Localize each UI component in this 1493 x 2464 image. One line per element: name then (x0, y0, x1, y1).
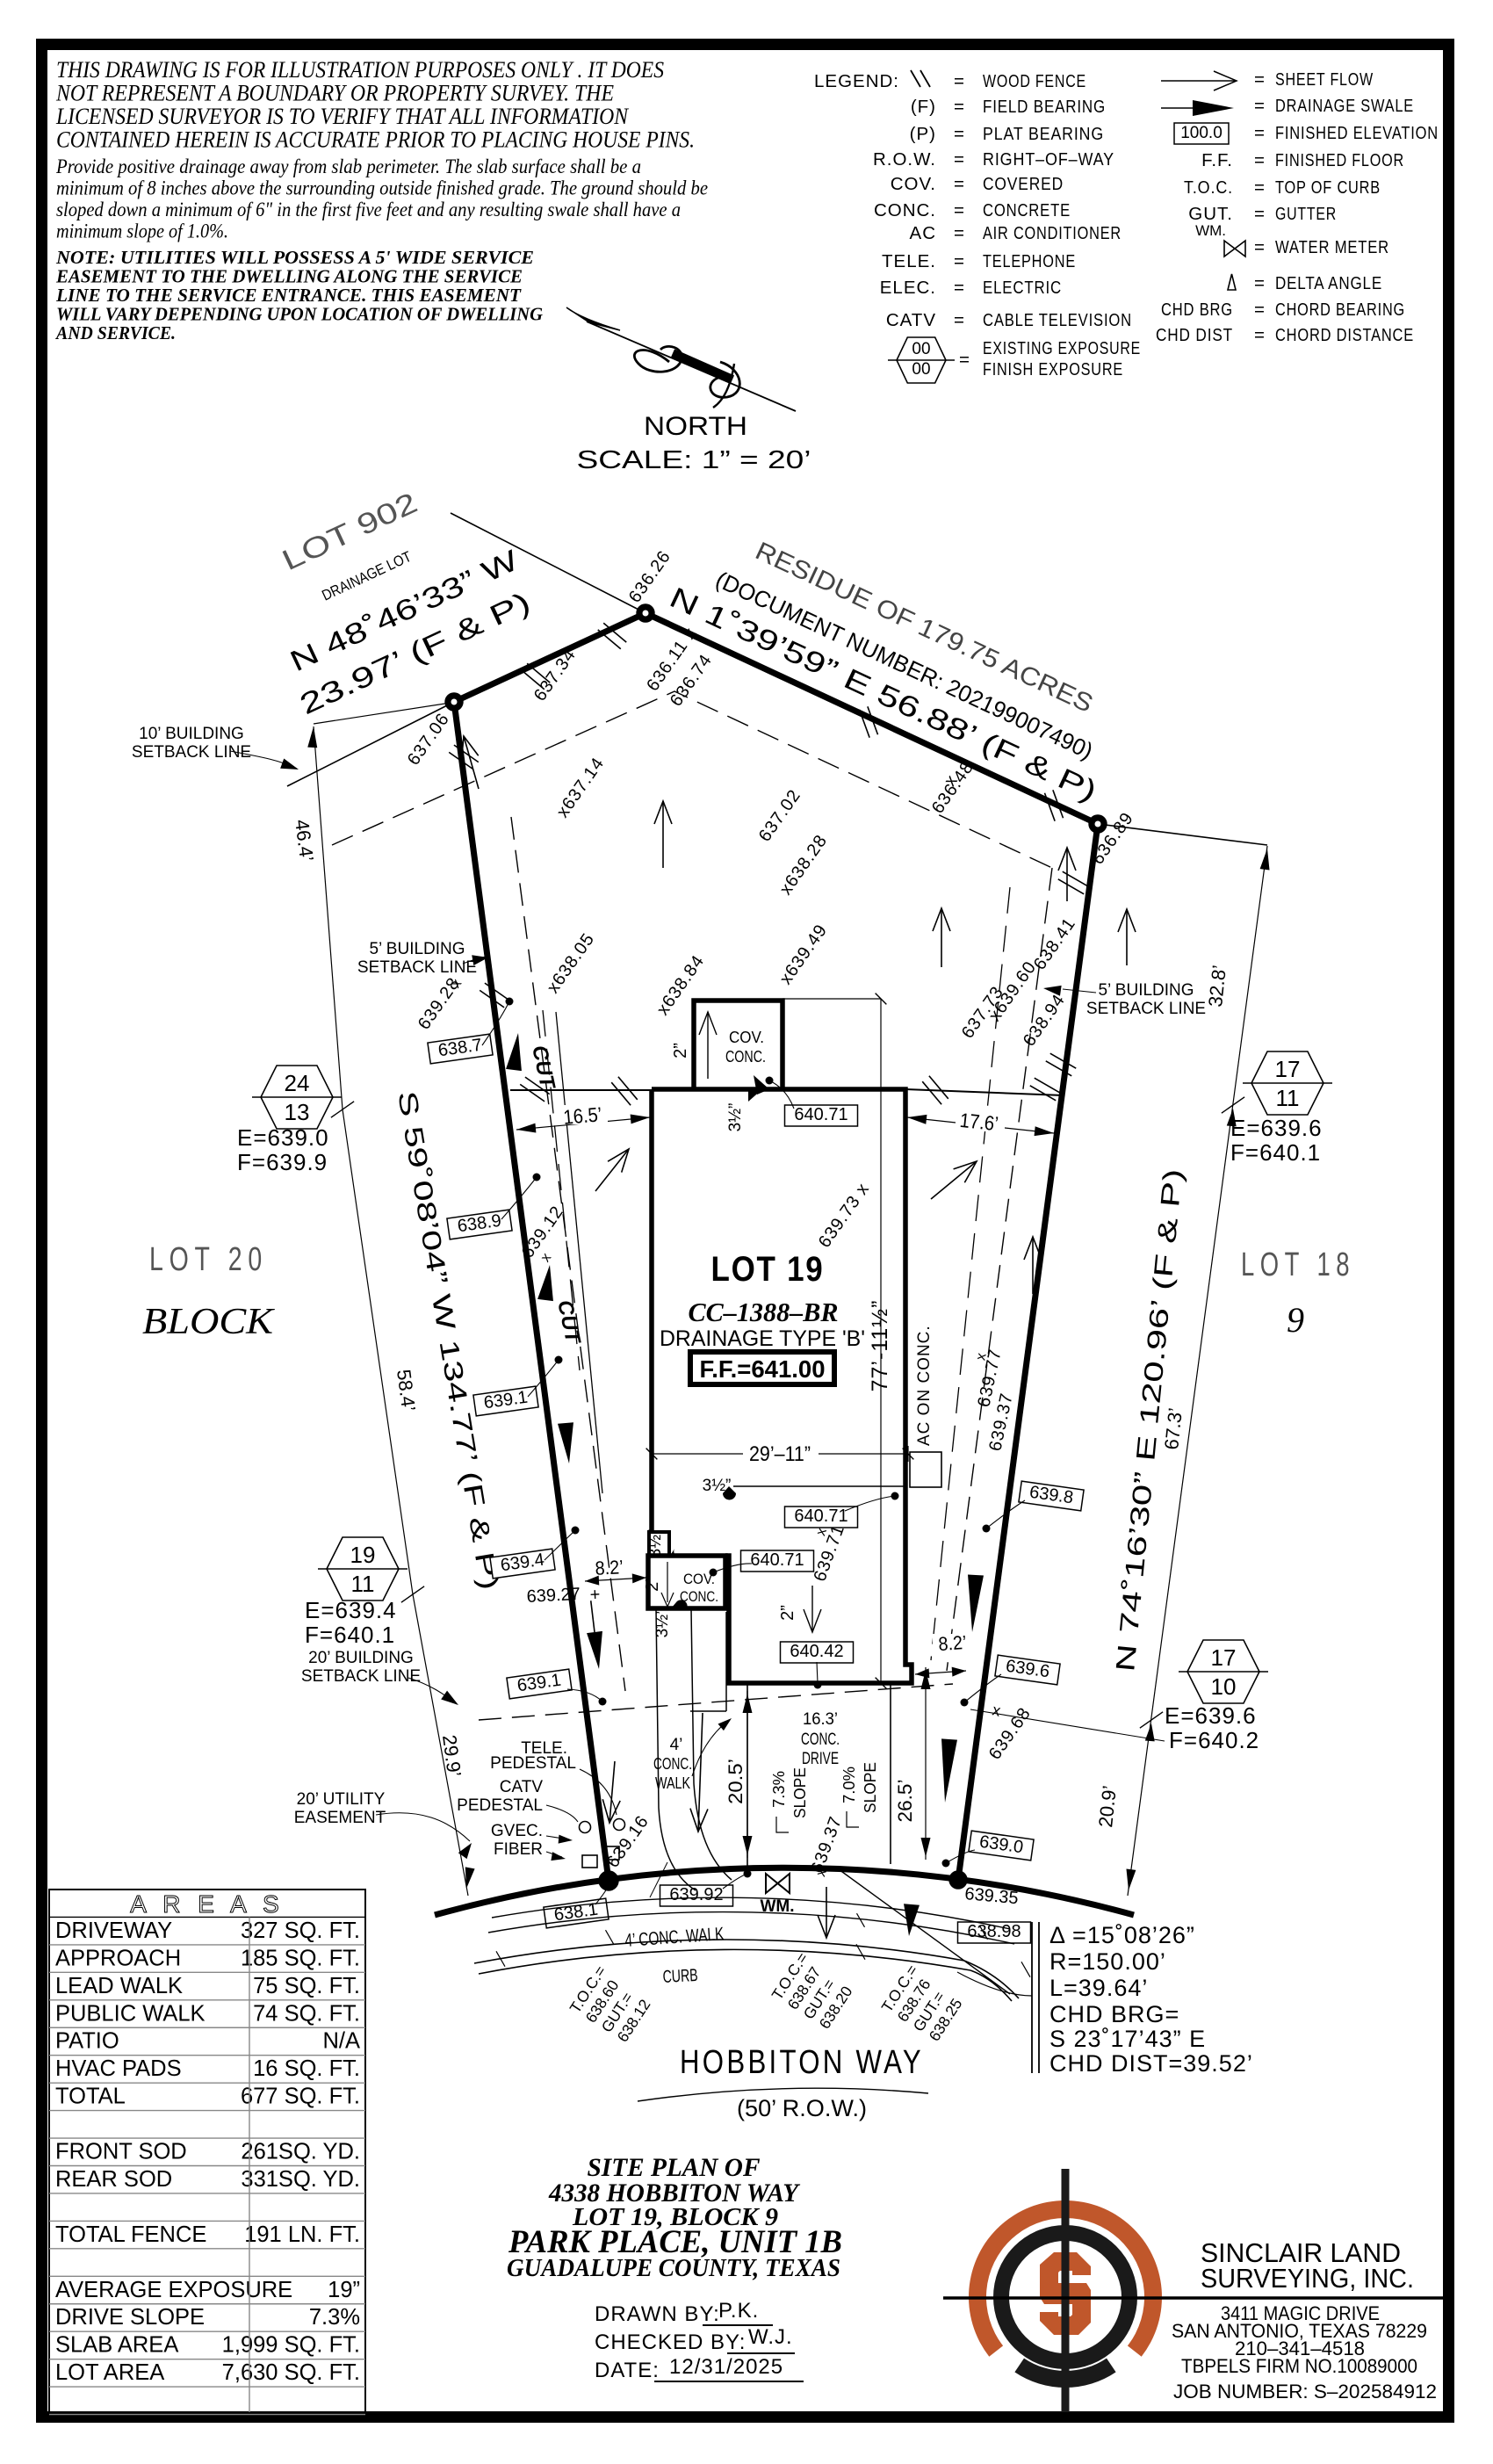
svg-text:11: 11 (351, 1571, 375, 1597)
svg-text:ELEC.: ELEC. (880, 278, 936, 298)
svg-text:AIR CONDITIONER: AIR CONDITIONER (983, 223, 1122, 243)
svg-text:185 SQ. FT.: 185 SQ. FT. (241, 1946, 360, 1970)
svg-text:5’ BUILDING: 5’ BUILDING (369, 940, 465, 958)
svg-text:minimum of 8 inches above the: minimum of 8 inches above the surroundin… (56, 177, 708, 199)
svg-text:SHEET FLOW: SHEET FLOW (1275, 69, 1374, 90)
svg-text:L=39.64’: L=39.64’ (1049, 1975, 1148, 2001)
svg-text:WM.: WM. (1195, 222, 1226, 239)
svg-text:EASEMENT TO THE DWELLING A: EASEMENT TO THE DWELLING ALONG THE SERVI… (55, 266, 523, 287)
svg-text:LICENSED SURVEYOR IS TO VERIFY: LICENSED SURVEYOR IS TO VERIFY THAT ALL … (55, 104, 629, 129)
svg-text:20’ BUILDING: 20’ BUILDING (308, 1649, 414, 1667)
svg-text:11: 11 (1276, 1085, 1300, 1111)
svg-text:26.5’: 26.5’ (894, 1780, 916, 1823)
svg-text:LOT 18: LOT 18 (1241, 1246, 1355, 1283)
svg-text:FINISH EXPOSURE: FINISH EXPOSURE (983, 359, 1123, 379)
svg-text:F=640.1: F=640.1 (305, 1622, 395, 1648)
svg-text:=: = (954, 71, 964, 91)
svg-text:CC–1388–BR: CC–1388–BR (689, 1297, 839, 1327)
svg-text:1,999 SQ. FT.: 1,999 SQ. FT. (222, 2333, 360, 2358)
svg-text:LOT 19: LOT 19 (711, 1250, 825, 1289)
svg-text:SETBACK LINE: SETBACK LINE (1086, 1000, 1206, 1018)
svg-text:261SQ. YD.: 261SQ. YD. (241, 2140, 360, 2164)
svg-text:minimum slope of 1.0%.: minimum slope of 1.0%. (56, 220, 228, 242)
svg-text:AND SERVICE.: AND SERVICE. (54, 322, 176, 343)
svg-text:SETBACK LINE: SETBACK LINE (132, 743, 251, 762)
svg-text:17.6’: 17.6’ (959, 1109, 999, 1135)
svg-text:LINE TO THE SERVICE ENTRAN: LINE TO THE SERVICE ENTRANCE. THIS EASEM… (55, 285, 522, 306)
svg-text:640.42: 640.42 (790, 1642, 843, 1661)
svg-text:CATV: CATV (500, 1778, 544, 1796)
svg-text:20.5’: 20.5’ (725, 1759, 746, 1804)
svg-text:CHD DIST=39.52’: CHD DIST=39.52’ (1049, 2050, 1253, 2077)
svg-text:COVERED: COVERED (983, 174, 1064, 194)
svg-text:SLAB AREA: SLAB AREA (55, 2333, 178, 2358)
svg-text:DRIVE: DRIVE (802, 1750, 839, 1768)
svg-text:=: = (1254, 96, 1265, 116)
svg-text:CHORD DISTANCE: CHORD DISTANCE (1275, 325, 1414, 345)
svg-text:SETBACK LINE: SETBACK LINE (301, 1667, 421, 1686)
svg-text:640.71: 640.71 (794, 1105, 847, 1124)
svg-text:77’‑11½”: 77’‑11½” (868, 1300, 892, 1392)
svg-text:sloped down a minimum of 6" in: sloped down a minimum of 6" in the first… (56, 199, 681, 220)
svg-text:16.5’: 16.5’ (562, 1102, 602, 1129)
svg-text:3½”: 3½” (726, 1103, 745, 1132)
svg-text:2”: 2” (643, 1576, 662, 1592)
svg-text:16.3’: 16.3’ (803, 1710, 838, 1729)
svg-text:=: = (959, 350, 970, 370)
svg-text:=: = (954, 124, 964, 144)
svg-text:=: = (1254, 123, 1265, 143)
svg-text:DRAINAGE SWALE: DRAINAGE SWALE (1275, 96, 1414, 116)
svg-text:HOBBITON WAY: HOBBITON WAY (680, 2044, 924, 2081)
svg-text:7.3%: 7.3% (309, 2305, 360, 2330)
svg-text:GUADALUPE COUNTY, TEXAS: GUADALUPE COUNTY, TEXAS (507, 2255, 840, 2282)
svg-text:10: 10 (1211, 1673, 1237, 1700)
svg-text:639.27: 639.27 (526, 1585, 581, 1607)
svg-text:19: 19 (350, 1542, 376, 1568)
svg-text:00: 00 (912, 340, 930, 358)
svg-text:17: 17 (1211, 1644, 1237, 1671)
svg-text:DRAINAGE TYPE 'B': DRAINAGE TYPE 'B' (660, 1326, 865, 1351)
svg-text:FINISHED ELEVATION: FINISHED ELEVATION (1275, 123, 1439, 143)
svg-text:LEAD WALK: LEAD WALK (55, 1974, 183, 1998)
svg-text:24: 24 (285, 1070, 310, 1096)
svg-text:AC ON CONC.: AC ON CONC. (915, 1325, 934, 1446)
svg-text:THIS DRAWING IS FOR ILLUSTRATI: THIS DRAWING IS FOR ILLUSTRATION PURPOSE… (56, 57, 664, 83)
svg-text:(F): (F) (911, 97, 936, 117)
svg-text:=: = (954, 278, 964, 298)
svg-text:ELECTRIC: ELECTRIC (983, 278, 1062, 298)
svg-text:16 SQ. FT.: 16 SQ. FT. (253, 2056, 360, 2081)
svg-text:EXISTING EXPOSURE: EXISTING EXPOSURE (983, 338, 1141, 358)
svg-text:F=640.2: F=640.2 (1169, 1727, 1259, 1753)
svg-text:8.2’: 8.2’ (938, 1631, 968, 1655)
svg-text:DELTA ANGLE: DELTA ANGLE (1275, 273, 1382, 293)
svg-text:DRIVE SLOPE: DRIVE SLOPE (55, 2305, 205, 2330)
svg-text:TOTAL: TOTAL (55, 2085, 126, 2109)
svg-text:A R E A S: A R E A S (130, 1890, 284, 1918)
svg-text:RIGHT–OF–WAY: RIGHT–OF–WAY (983, 149, 1114, 170)
svg-text:CONC.: CONC. (874, 200, 936, 220)
svg-text:TOTAL FENCE: TOTAL FENCE (55, 2222, 206, 2247)
svg-text:=: = (1254, 237, 1265, 257)
svg-text:74 SQ. FT.: 74 SQ. FT. (253, 2001, 360, 2026)
svg-text:7,630 SQ. FT.: 7,630 SQ. FT. (222, 2360, 360, 2385)
svg-text:DATE:: DATE: (595, 2359, 660, 2382)
svg-text:E=639.0: E=639.0 (237, 1124, 329, 1151)
svg-text:FRONT SOD: FRONT SOD (55, 2140, 187, 2164)
svg-text:19”: 19” (328, 2278, 360, 2302)
svg-text:=: = (954, 174, 964, 194)
svg-text:E=639.4: E=639.4 (305, 1597, 397, 1623)
svg-text:WALK: WALK (655, 1774, 690, 1792)
svg-text:=: = (954, 200, 964, 220)
svg-text:SETBACK LINE: SETBACK LINE (357, 958, 477, 977)
svg-text:20’ UTILITY: 20’ UTILITY (297, 1790, 386, 1809)
svg-text:WATER METER: WATER METER (1275, 237, 1389, 257)
svg-text:Provide positive drainage away: Provide positive drainage away from slab… (55, 155, 641, 177)
svg-text:191 LN. FT.: 191 LN. FT. (244, 2222, 360, 2247)
svg-text:GUT.: GUT. (1188, 204, 1233, 224)
svg-text:N/A: N/A (322, 2029, 360, 2054)
svg-text:SURVEYING, INC.: SURVEYING, INC. (1201, 2263, 1414, 2294)
svg-text:GVEC.: GVEC. (491, 1822, 543, 1840)
svg-text:PATIO: PATIO (55, 2029, 119, 2054)
svg-text:GUTTER: GUTTER (1275, 204, 1337, 224)
svg-text:CURB: CURB (662, 1966, 698, 1987)
svg-text:331SQ. YD.: 331SQ. YD. (241, 2167, 360, 2192)
svg-text:PLAT BEARING: PLAT BEARING (983, 124, 1104, 144)
svg-text:75 SQ. FT.: 75 SQ. FT. (253, 1974, 360, 1998)
svg-text:7.3%: 7.3% (770, 1771, 788, 1808)
svg-text:AVERAGE EXPOSURE: AVERAGE EXPOSURE (55, 2278, 292, 2302)
svg-text:BLOCK: BLOCK (142, 1302, 275, 1342)
svg-text:100.0: 100.0 (1180, 124, 1223, 142)
svg-text:CHECKED BY:: CHECKED BY: (595, 2330, 746, 2354)
svg-text:R=150.00’: R=150.00’ (1049, 1948, 1166, 1975)
svg-text:10’ BUILDING: 10’ BUILDING (139, 725, 244, 743)
svg-text:EASEMENT: EASEMENT (294, 1809, 386, 1827)
svg-text:R.O.W.: R.O.W. (873, 149, 936, 170)
svg-text:NORTH: NORTH (644, 412, 747, 441)
svg-text:3½”: 3½” (646, 1529, 665, 1558)
svg-text:FIBER: FIBER (494, 1840, 543, 1859)
svg-text:29’–11”: 29’–11” (749, 1442, 811, 1466)
svg-text:WM.: WM. (760, 1897, 794, 1916)
svg-text:CATV: CATV (886, 310, 936, 330)
svg-text:=: = (954, 310, 964, 330)
svg-text:S 23˚17’43” E: S 23˚17’43” E (1049, 2026, 1206, 2052)
svg-text:=: = (954, 251, 964, 271)
svg-text:LOT 20: LOT 20 (149, 1241, 268, 1278)
svg-text:(P): (P) (910, 124, 936, 144)
svg-text:FINISHED FLOOR: FINISHED FLOOR (1275, 150, 1404, 170)
svg-text:=: = (954, 97, 964, 117)
svg-text:PEDESTAL: PEDESTAL (490, 1754, 576, 1773)
svg-text:67.3’: 67.3’ (1160, 1406, 1186, 1450)
svg-text:2”: 2” (671, 1043, 690, 1059)
svg-text:TBPELS FIRM NO.10089000: TBPELS FIRM NO.10089000 (1181, 2355, 1417, 2377)
svg-text:SLOPE: SLOPE (862, 1762, 879, 1813)
svg-text:W.J.: W.J. (748, 2325, 793, 2349)
svg-text:SLOPE: SLOPE (791, 1767, 809, 1818)
svg-text:CONCRETE: CONCRETE (983, 200, 1071, 220)
svg-text:Δ =15˚08’26”: Δ =15˚08’26” (1049, 1922, 1195, 1948)
svg-text:CHD BRG: CHD BRG (1161, 300, 1233, 320)
svg-text:=: = (1254, 150, 1265, 170)
svg-text:PEDESTAL: PEDESTAL (457, 1796, 543, 1815)
svg-text:TELE.: TELE. (882, 251, 936, 271)
svg-text:640.71: 640.71 (794, 1507, 847, 1526)
svg-text:NOT REPRESENT A BOUNDARY OR PR: NOT REPRESENT A BOUNDARY OR PROPERTY SUR… (55, 81, 614, 106)
svg-text:12/31/2025: 12/31/2025 (669, 2355, 783, 2379)
svg-text:FIELD BEARING: FIELD BEARING (983, 97, 1106, 117)
svg-text:=: = (1254, 300, 1265, 320)
svg-text:20.9’: 20.9’ (1094, 1784, 1121, 1828)
svg-text:PUBLIC WALK: PUBLIC WALK (55, 2001, 206, 2026)
svg-text:9: 9 (1287, 1300, 1304, 1340)
svg-text:COV.: COV. (729, 1029, 764, 1046)
svg-text:APPROACH: APPROACH (55, 1946, 181, 1970)
svg-text:LOT AREA: LOT AREA (55, 2360, 164, 2385)
svg-text:REAR SOD: REAR SOD (55, 2167, 172, 2192)
svg-text:=: = (1254, 273, 1265, 293)
svg-text:=: = (954, 223, 964, 243)
svg-text:TOP OF CURB: TOP OF CURB (1275, 177, 1381, 198)
svg-text:WOOD FENCE: WOOD FENCE (983, 71, 1086, 91)
svg-text:=: = (954, 149, 964, 170)
svg-text:=: = (1254, 177, 1265, 198)
svg-text:=: = (1254, 69, 1265, 90)
svg-text:F=639.9: F=639.9 (237, 1149, 328, 1175)
svg-text:DRAWN BY:: DRAWN BY: (595, 2302, 720, 2326)
svg-text:F=640.1: F=640.1 (1230, 1139, 1321, 1166)
svg-text:DRIVEWAY: DRIVEWAY (55, 1918, 172, 1943)
svg-text:CHD DIST: CHD DIST (1156, 325, 1233, 345)
svg-text:CONC.: CONC. (653, 1755, 692, 1773)
svg-text:NOTE: UTILITIES WILL POSSES: NOTE: UTILITIES WILL POSSESS A 5' WIDE S… (55, 247, 534, 268)
svg-text:CABLE TELEVISION: CABLE TELEVISION (983, 310, 1132, 330)
svg-text:7.0%: 7.0% (840, 1767, 858, 1803)
svg-text:T.O.C.: T.O.C. (1184, 177, 1233, 198)
svg-text:00: 00 (912, 360, 930, 379)
svg-text:SCALE: 1” = 20’: SCALE: 1” = 20’ (577, 446, 811, 474)
svg-text:JOB NUMBER: S–202584912: JOB NUMBER: S–202584912 (1173, 2381, 1437, 2403)
svg-text:4’: 4’ (670, 1736, 683, 1754)
svg-text:=: = (1254, 204, 1265, 224)
svg-text:32.8’: 32.8’ (1204, 964, 1230, 1008)
svg-text:F.F.: F.F. (1201, 150, 1233, 170)
svg-text:F.F.=641.00: F.F.=641.00 (700, 1355, 826, 1383)
svg-text:CONC.: CONC. (725, 1048, 766, 1066)
svg-text:CONTAINED HEREIN IS ACCURATE P: CONTAINED HEREIN IS ACCURATE PRIOR TO PL… (56, 127, 695, 153)
svg-text:E=639.6: E=639.6 (1165, 1702, 1257, 1729)
svg-text:CHD BRG=: CHD BRG= (1049, 2001, 1179, 2027)
svg-text:COV.: COV. (891, 174, 936, 194)
svg-text:638.98: 638.98 (967, 1922, 1021, 1941)
svg-text:E=639.6: E=639.6 (1230, 1115, 1323, 1141)
svg-text:TELEPHONE: TELEPHONE (983, 251, 1076, 271)
svg-text:LEGEND:: LEGEND: (814, 71, 899, 91)
svg-text:=: = (1254, 325, 1265, 345)
svg-text:5’ BUILDING: 5’ BUILDING (1098, 981, 1194, 1000)
svg-text:(50’ R.O.W.): (50’ R.O.W.) (737, 2095, 867, 2121)
svg-text:17: 17 (1275, 1056, 1301, 1082)
svg-text:640.71: 640.71 (750, 1550, 804, 1570)
svg-text:AC: AC (910, 223, 936, 243)
svg-text:13: 13 (285, 1099, 310, 1125)
svg-text:CHORD BEARING: CHORD BEARING (1275, 300, 1405, 320)
svg-text:677 SQ. FT.: 677 SQ. FT. (241, 2085, 360, 2109)
svg-text:CONC.: CONC. (801, 1731, 840, 1749)
svg-text:HVAC PADS: HVAC PADS (55, 2056, 182, 2081)
svg-text:639.92: 639.92 (669, 1885, 723, 1904)
svg-text:327 SQ. FT.: 327 SQ. FT. (241, 1918, 360, 1943)
svg-text:8.2’: 8.2’ (595, 1556, 624, 1579)
svg-text:P.K.: P.K. (718, 2299, 759, 2323)
svg-text:WILL VARY DEPENDING UPON L: WILL VARY DEPENDING UPON LOCATION OF DWE… (56, 304, 543, 325)
svg-text:2”: 2” (778, 1605, 797, 1621)
